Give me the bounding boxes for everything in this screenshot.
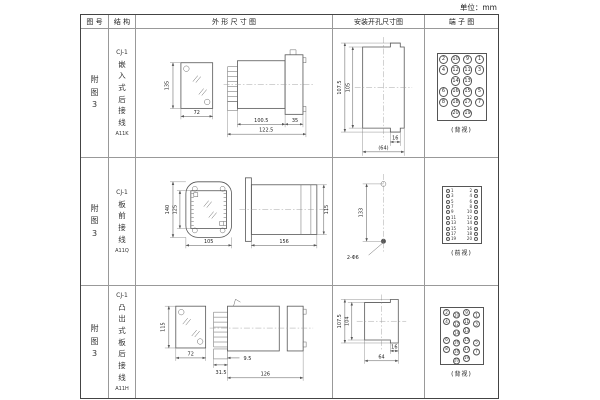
terminal-slot: 8: [442, 345, 451, 353]
terminal-slot: 16: [450, 87, 461, 97]
side-view: 31.5 9.5 126: [210, 299, 313, 381]
header-fig-no: 图 号: [81, 15, 109, 29]
front-view: 135 72: [165, 63, 213, 120]
dim-inner-r3: 104: [344, 317, 350, 326]
terminal-pin-number: 20: [467, 237, 472, 241]
terminal-slot: [438, 76, 449, 86]
terminal-pin: 7: [473, 348, 480, 355]
dim-inner-r1: 105: [345, 83, 351, 92]
terminal-pin: 8: [443, 346, 450, 353]
header-terminal: 端 子 图: [425, 15, 498, 29]
terminal-slot: 18: [452, 348, 461, 356]
terminal-slot: 19: [462, 109, 473, 119]
terminal-pin: [446, 227, 450, 231]
terminal-pin: 3: [473, 321, 480, 328]
terminal-pin: 20: [451, 109, 461, 119]
dim-flange-r1: 35: [292, 118, 298, 124]
terminal-pin: 18: [453, 348, 460, 355]
dim-width-r1: 72: [194, 110, 200, 116]
dim-height-r1: 135: [165, 81, 171, 90]
terminal-pin: [474, 232, 478, 236]
terminal-cell-row2: 1234567891011121314151617181920 (前视): [425, 158, 498, 286]
dim-depth-total-r3: 126: [261, 371, 270, 377]
terminal-view-label-row2: (前视): [451, 248, 472, 257]
dim-outer-r3: 107.5: [337, 314, 343, 328]
terminal-pin: 12: [453, 321, 460, 328]
terminal-pin: 6: [439, 87, 449, 97]
terminal-slot: [472, 329, 481, 337]
terminal-pin: 7: [475, 98, 485, 108]
terminal-pin: 14: [451, 76, 461, 86]
terminal-pin-number: 9: [451, 210, 454, 214]
install-diagram-row3: 107.5 104 16 64: [333, 286, 424, 398]
terminal-slot: [438, 109, 449, 119]
fig-no-cell-row2: 附图3: [81, 158, 109, 286]
terminal-slot: 14: [452, 329, 461, 337]
header-install: 安装开孔尺寸图: [333, 15, 425, 29]
header-structure: 结 构: [109, 15, 136, 29]
terminal-pin: 4: [443, 318, 450, 325]
terminal-row: 1413: [438, 76, 486, 86]
dim-depth-body-r1: 100.5: [254, 118, 268, 124]
terminal-pair-right: 2: [469, 189, 477, 193]
structure-desc-row2: 板前接线: [118, 199, 127, 246]
terminal-slot: 6: [438, 87, 449, 97]
terminal-row: 1920: [446, 237, 478, 242]
terminal-pair-left: 1: [446, 189, 454, 193]
terminal-slot: 10: [452, 311, 461, 319]
outline-cell-row3: 115 72 31.5 9.5: [136, 286, 333, 398]
side-view: 100.5 35 122.5: [224, 50, 313, 137]
terminal-pin-number: 2: [469, 189, 472, 193]
terminal-pin: 2: [443, 309, 450, 316]
header-outline: 外 形 尺 寸 图: [136, 15, 333, 29]
structure-cell-row1: CJ-1 嵌入式后接线 A11K: [109, 29, 136, 158]
terminal-pair-left: 19: [446, 237, 457, 241]
code-row1: A11K: [115, 131, 128, 137]
terminal-slot: 11: [462, 318, 471, 326]
terminal-pair-right: 20: [467, 237, 478, 241]
terminal-pin: 3: [475, 65, 485, 75]
terminal-pin: [474, 189, 478, 193]
code-row3: A11H: [115, 386, 129, 392]
dim-a-r3: 31.5: [216, 370, 227, 376]
terminal-pin-number: 3: [451, 194, 454, 198]
terminal-pin: 4: [439, 65, 449, 75]
dim-height-r3: 115: [160, 322, 166, 331]
terminal-pin-number: 15: [451, 227, 456, 231]
terminal-pin: 16: [451, 87, 461, 97]
terminal-slot: 7: [474, 98, 485, 108]
install-cell-row2: 133 2-Φ6: [333, 158, 425, 286]
terminal-pin: [474, 194, 478, 198]
terminal-slot: 1: [472, 311, 481, 319]
terminal-pin-number: 5: [451, 200, 454, 204]
terminal-pin: [446, 189, 450, 193]
terminal-slot: 12: [452, 320, 461, 328]
terminal-slot: 4: [438, 65, 449, 75]
terminal-pin: 11: [463, 65, 473, 75]
terminal-diagram-row3: 2109141211314136161558181772019: [440, 307, 484, 365]
install-cell-row3: 107.5 104 16 64: [333, 286, 425, 398]
fig-no-cell-row3: 附图3: [81, 286, 109, 398]
terminal-slot: [442, 354, 451, 362]
structure-desc-row1: 嵌入式后接线: [118, 59, 127, 129]
terminal-pin: 5: [475, 87, 485, 97]
structure-cell-row2: CJ-1 板前接线 A11Q: [109, 158, 136, 286]
terminal-pair-right: 12: [467, 216, 478, 220]
fig-no-row2: 附图3: [90, 203, 100, 240]
terminal-pin-number: 13: [451, 221, 456, 225]
terminal-pin-number: 18: [467, 232, 472, 236]
terminal-pin: 5: [473, 339, 480, 346]
terminal-pin: [474, 237, 478, 241]
terminal-pin: 13: [463, 327, 470, 334]
terminal-pin: 16: [453, 339, 460, 346]
terminal-slot: 10: [450, 54, 461, 64]
spec-table: 图 号 结 构 外 形 尺 寸 图 安装开孔尺寸图 端 子 图 附图3 CJ-1…: [80, 14, 499, 399]
terminal-pin: 15: [463, 337, 470, 344]
terminal-slot: 7: [472, 348, 481, 356]
terminal-cell-row3: 2109141211314136161558181772019 (背视): [425, 286, 498, 398]
terminal-slot: 2: [442, 309, 451, 317]
terminal-slot: [474, 76, 485, 86]
terminal-pin: 9: [463, 309, 470, 316]
terminal-pin: [474, 210, 478, 214]
terminal-diagram-row2: 1234567891011121314151617181920: [442, 186, 482, 244]
terminal-row: 21091: [441, 309, 483, 317]
terminal-row: 2019: [438, 109, 486, 119]
terminal-pair-right: 16: [467, 227, 478, 231]
terminal-pin: 10: [451, 55, 461, 65]
terminal-slot: 17: [462, 345, 471, 353]
terminal-pin: 17: [463, 346, 470, 353]
terminal-pin: [474, 216, 478, 220]
terminal-pin-number: 17: [451, 232, 456, 236]
terminal-pair-left: 17: [446, 232, 457, 236]
terminal-pin: [446, 221, 450, 225]
terminal-pin-number: 7: [451, 205, 454, 209]
terminal-slot: 11: [462, 65, 473, 75]
outline-cell-row1: 135 72 100.5 35: [136, 29, 333, 158]
terminal-pin-number: 12: [467, 216, 472, 220]
terminal-slot: 3: [474, 65, 485, 75]
terminal-pin-number: 19: [451, 237, 456, 241]
outline-cell-row2: 140 125 105 156 115: [136, 158, 333, 286]
terminal-pin: [474, 227, 478, 231]
dim-depth-total-r1: 122.5: [259, 128, 273, 134]
dim-w2-r1: (64): [378, 145, 388, 151]
dim-outer-r1: 107.5: [337, 80, 343, 94]
terminal-pin-number: 16: [467, 227, 472, 231]
structure-cell-row3: CJ-1 凸出式板后接线 A11H: [109, 286, 136, 398]
dim-w1-r3: 16: [391, 344, 397, 350]
dim-b-r3: 9.5: [243, 356, 251, 362]
dim-side-height-r2: 115: [324, 205, 330, 214]
terminal-pin: [446, 194, 450, 198]
terminal-slot: 16: [452, 339, 461, 347]
dim-depth-r2: 156: [279, 239, 288, 245]
model-row1: CJ-1: [116, 49, 128, 56]
terminal-slot: 13: [462, 76, 473, 86]
terminal-pair-left: 5: [446, 200, 454, 204]
install-diagram-row2: 133 2-Φ6: [333, 158, 424, 285]
terminal-slot: 3: [472, 320, 481, 328]
terminal-slot: 9: [462, 309, 471, 317]
terminal-pin: [474, 205, 478, 209]
dim-height-outer-r2: 140: [165, 205, 171, 214]
terminal-pair-right: 6: [469, 200, 477, 204]
fig-no-cell-row1: 附图3: [81, 29, 109, 158]
terminal-row: 616155: [438, 87, 486, 97]
hole-label-r2: 2-Φ6: [347, 255, 359, 261]
terminal-pin-number: 4: [469, 194, 472, 198]
terminal-pin: 1: [475, 55, 485, 65]
outline-diagram-row1: 135 72 100.5 35: [136, 29, 332, 157]
terminal-pair-left: 15: [446, 227, 457, 231]
terminal-pin: 8: [439, 98, 449, 108]
terminal-cell-row1: 2109141211314136161558181772019 (背视): [425, 29, 498, 158]
terminal-pin: [446, 232, 450, 236]
terminal-pin-number: 8: [469, 205, 472, 209]
terminal-pin: [446, 200, 450, 204]
terminal-pin: 1: [473, 312, 480, 319]
front-view: 115 72: [160, 306, 205, 361]
terminal-slot: 5: [472, 339, 481, 347]
outline-diagram-row2: 140 125 105 156 115: [136, 158, 332, 285]
terminal-slot: 2: [438, 54, 449, 64]
terminal-pin: 14: [453, 330, 460, 337]
terminal-diagram-row1: 2109141211314136161558181772019: [437, 53, 487, 121]
terminal-pin: 6: [443, 337, 450, 344]
terminal-pin: 17: [463, 98, 473, 108]
terminal-slot: 18: [450, 98, 461, 108]
install-diagram-row1: 107.5 105 16 (64): [333, 29, 424, 157]
terminal-slot: 14: [450, 76, 461, 86]
terminal-slot: 4: [442, 318, 451, 326]
dim-w1-r1: 16: [392, 135, 398, 141]
terminal-slot: 15: [462, 87, 473, 97]
terminal-slot: 5: [474, 87, 485, 97]
terminal-pin: 2: [439, 55, 449, 65]
terminal-pin-number: 1: [451, 189, 454, 193]
terminal-pair-left: 13: [446, 221, 457, 225]
terminal-slot: 17: [462, 98, 473, 108]
dim-v-r2: 133: [359, 208, 365, 217]
page: 单位：mm 图 号 结 构 外 形 尺 寸 图 安装开孔尺寸图 端 子 图 附图…: [0, 0, 600, 400]
terminal-pin: 19: [463, 355, 470, 362]
code-row2: A11Q: [115, 248, 129, 254]
dim-height-inner-r2: 125: [172, 205, 178, 214]
terminal-pin: [446, 237, 450, 241]
outline-diagram-row3: 115 72 31.5 9.5: [136, 286, 332, 398]
fig-no-row3: 附图3: [90, 323, 100, 360]
terminal-row: 412113: [438, 65, 486, 75]
install-cell-row1: 107.5 105 16 (64): [333, 29, 425, 158]
terminal-slot: 1: [474, 54, 485, 64]
terminal-pin-number: 6: [469, 200, 472, 204]
terminal-pair-left: 9: [446, 210, 454, 214]
terminal-pair-right: 10: [467, 210, 478, 214]
dim-width-r2: 105: [204, 239, 213, 245]
side-view: 156 115: [239, 178, 329, 248]
terminal-pair-right: 18: [467, 232, 478, 236]
fig-no-row1: 附图3: [90, 74, 100, 111]
terminal-pin-number: 10: [467, 210, 472, 214]
terminal-slot: 6: [442, 336, 451, 344]
terminal-pin: 11: [463, 318, 470, 325]
terminal-pin: 10: [453, 312, 460, 319]
terminal-slot: 15: [462, 336, 471, 344]
terminal-pin: [446, 210, 450, 214]
terminal-slot: 12: [450, 65, 461, 75]
terminal-slot: 13: [462, 327, 471, 335]
terminal-slot: 20: [450, 109, 461, 119]
terminal-pin: 9: [463, 55, 473, 65]
terminal-pin-number: 14: [467, 221, 472, 225]
terminal-pin: 15: [463, 87, 473, 97]
terminal-pin-number: 11: [451, 216, 456, 220]
unit-label: 单位：mm: [394, 2, 497, 13]
terminal-slot: [474, 109, 485, 119]
terminal-pair-left: 3: [446, 194, 454, 198]
terminal-pair-left: 7: [446, 205, 454, 209]
terminal-pin: [474, 200, 478, 204]
terminal-slot: 20: [452, 357, 461, 365]
terminal-pin: 20: [453, 357, 460, 364]
terminal-pair-left: 11: [446, 216, 457, 220]
terminal-pair-right: 8: [469, 205, 477, 209]
terminal-slot: [472, 357, 481, 365]
terminal-slot: 19: [462, 354, 471, 362]
terminal-pin: [446, 216, 450, 220]
terminal-pin: 13: [463, 76, 473, 86]
terminal-pin: 18: [451, 98, 461, 108]
model-row2: CJ-1: [116, 189, 128, 196]
terminal-slot: 8: [438, 98, 449, 108]
terminal-pin: [446, 205, 450, 209]
terminal-row: 818177: [438, 98, 486, 108]
structure-desc-row3: 凸出式板后接线: [118, 302, 127, 383]
front-view: 140 125 105: [165, 182, 232, 248]
terminal-pin: 12: [451, 65, 461, 75]
terminal-pin: 19: [463, 109, 473, 119]
terminal-slot: [442, 327, 451, 335]
terminal-view-label-row1: (背视): [451, 125, 472, 134]
terminal-slot: 9: [462, 54, 473, 64]
dim-width-r3: 72: [188, 351, 194, 357]
terminal-pin: [474, 221, 478, 225]
terminal-row: 21091: [438, 54, 486, 64]
dim-w2-r3: 64: [378, 354, 384, 360]
terminal-view-label-row3: (背视): [451, 369, 472, 378]
terminal-pair-right: 14: [467, 221, 478, 225]
model-row3: CJ-1: [116, 292, 128, 299]
terminal-pair-right: 4: [469, 194, 477, 198]
